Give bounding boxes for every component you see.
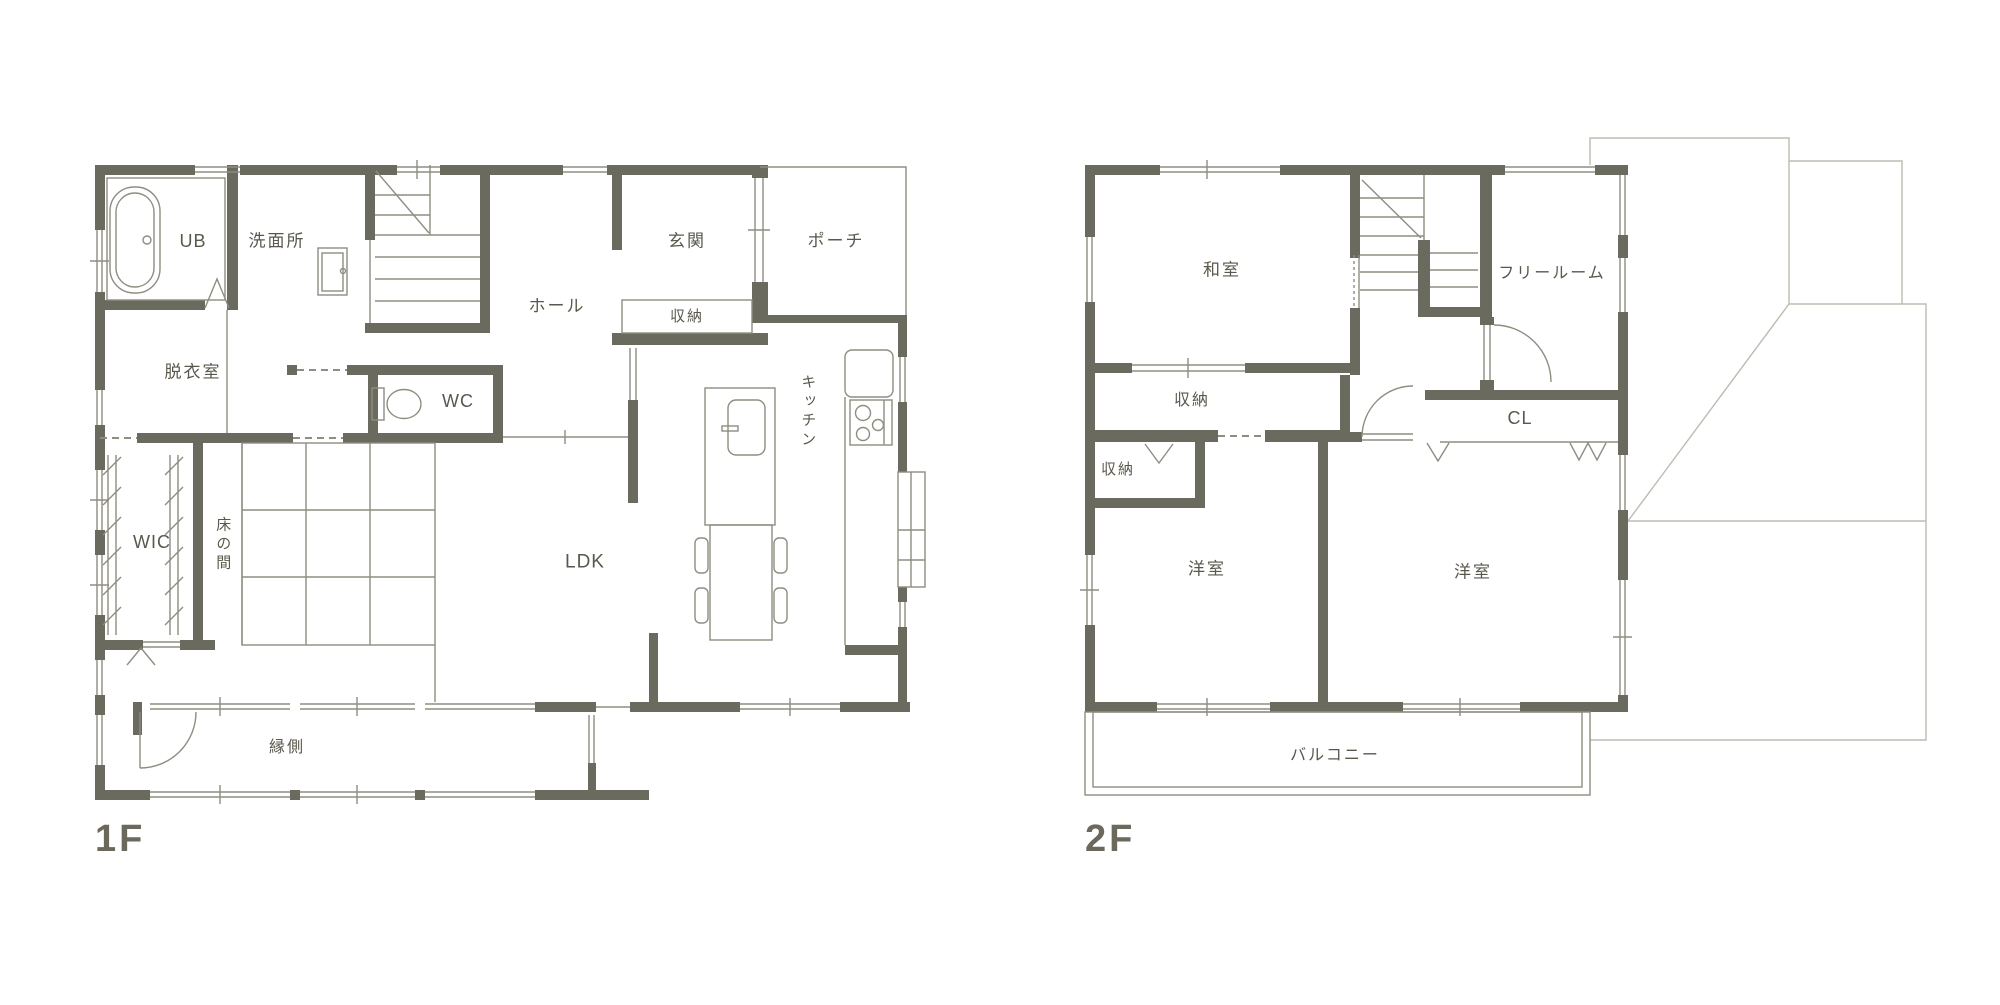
room-label-yoshitsu-right: 洋室 bbox=[1454, 564, 1492, 583]
floorplan-canvas: UB 洗面所 玄関 ポーチ 収納 ホール WC 脱衣室 WIC 床の間 キッチン… bbox=[0, 0, 2000, 1005]
toilet-icon bbox=[372, 388, 421, 420]
washbasin-icon bbox=[318, 248, 347, 295]
room-label-balcony: バルコニー bbox=[1290, 747, 1380, 765]
room-label-tokonoma: 床の間 bbox=[214, 517, 231, 574]
dining-set-icon bbox=[695, 525, 787, 640]
refrigerator-icon bbox=[845, 350, 893, 397]
room-label-free-room: フリールーム bbox=[1498, 265, 1606, 283]
floor2-title: 2F bbox=[1085, 818, 1135, 861]
room-label-ub: UB bbox=[179, 232, 206, 252]
room-label-genkan-shuno: 収納 bbox=[670, 309, 704, 326]
kitchen-island-icon bbox=[705, 388, 775, 525]
room-label-senmenjo: 洗面所 bbox=[249, 233, 306, 252]
floorplan-svg bbox=[0, 0, 2000, 1005]
room-label-porch: ポーチ bbox=[808, 233, 865, 252]
sliding-window-icon bbox=[898, 472, 925, 587]
floor2-walls bbox=[1085, 165, 1628, 712]
floor1-walls bbox=[95, 165, 910, 800]
stairs-1f-icon bbox=[370, 165, 480, 323]
room-label-genkan: 玄関 bbox=[668, 233, 706, 252]
floor1-details bbox=[90, 160, 925, 804]
roof-outline-icon bbox=[1590, 138, 1926, 740]
room-label-datsuishitsu: 脱衣室 bbox=[165, 364, 222, 383]
tatami-grid-icon bbox=[242, 443, 435, 702]
room-label-ldk: LDK bbox=[565, 553, 605, 574]
floor1-dashed bbox=[100, 370, 347, 438]
room-label-shuno-lower: 収納 bbox=[1101, 462, 1135, 479]
stove-icon bbox=[850, 400, 892, 445]
room-label-wic: WIC bbox=[133, 533, 171, 553]
room-label-yoshitsu-left: 洋室 bbox=[1188, 561, 1226, 580]
floor1-title: 1F bbox=[95, 818, 145, 861]
room-label-kitchen: キッチン bbox=[799, 374, 816, 450]
room-label-shuno-upper: 収納 bbox=[1174, 392, 1210, 410]
room-label-wc: WC bbox=[442, 392, 474, 412]
room-label-engawa: 縁側 bbox=[269, 739, 305, 757]
room-label-cl: CL bbox=[1507, 409, 1532, 429]
room-label-hall: ホール bbox=[529, 298, 586, 317]
room-label-washitsu: 和室 bbox=[1203, 262, 1241, 281]
